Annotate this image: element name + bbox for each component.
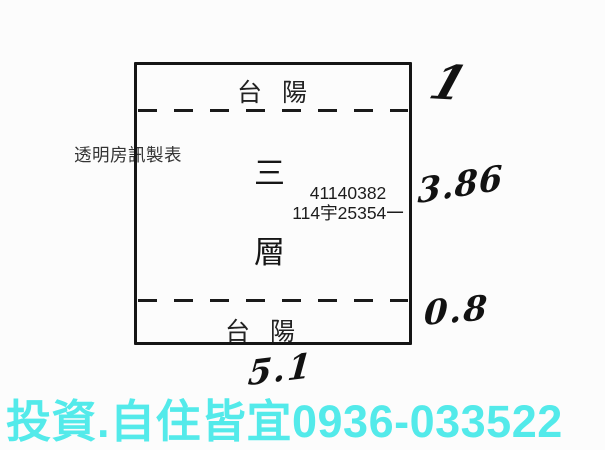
registration-number: 41140382 bbox=[280, 183, 416, 203]
dashed-divider-top bbox=[138, 109, 408, 112]
balcony-label-top: 台 陽 bbox=[137, 73, 409, 109]
scanned-floorplan-sheet: 透明房訊製表 台 陽 三 層 41140382 114宇25354一 台 陽 1… bbox=[0, 0, 605, 450]
identifier-block: 41140382 114宇25354一 bbox=[280, 183, 416, 223]
dimension-top-right: 1 bbox=[423, 55, 474, 112]
balcony-label-bottom: 台 陽 bbox=[125, 312, 397, 348]
parcel-number: 114宇25354一 bbox=[280, 203, 416, 223]
footer-ad-text: 投資.自住皆宜0936-033522 bbox=[6, 385, 563, 450]
dimension-bottom-right: 0.8 bbox=[423, 288, 490, 334]
dimension-right: 3.86 bbox=[417, 158, 503, 212]
floorplan-outline: 台 陽 三 層 41140382 114宇25354一 台 陽 bbox=[134, 62, 412, 345]
dashed-divider-bottom bbox=[138, 299, 408, 302]
floor-label-char-2: 層 bbox=[254, 227, 285, 272]
